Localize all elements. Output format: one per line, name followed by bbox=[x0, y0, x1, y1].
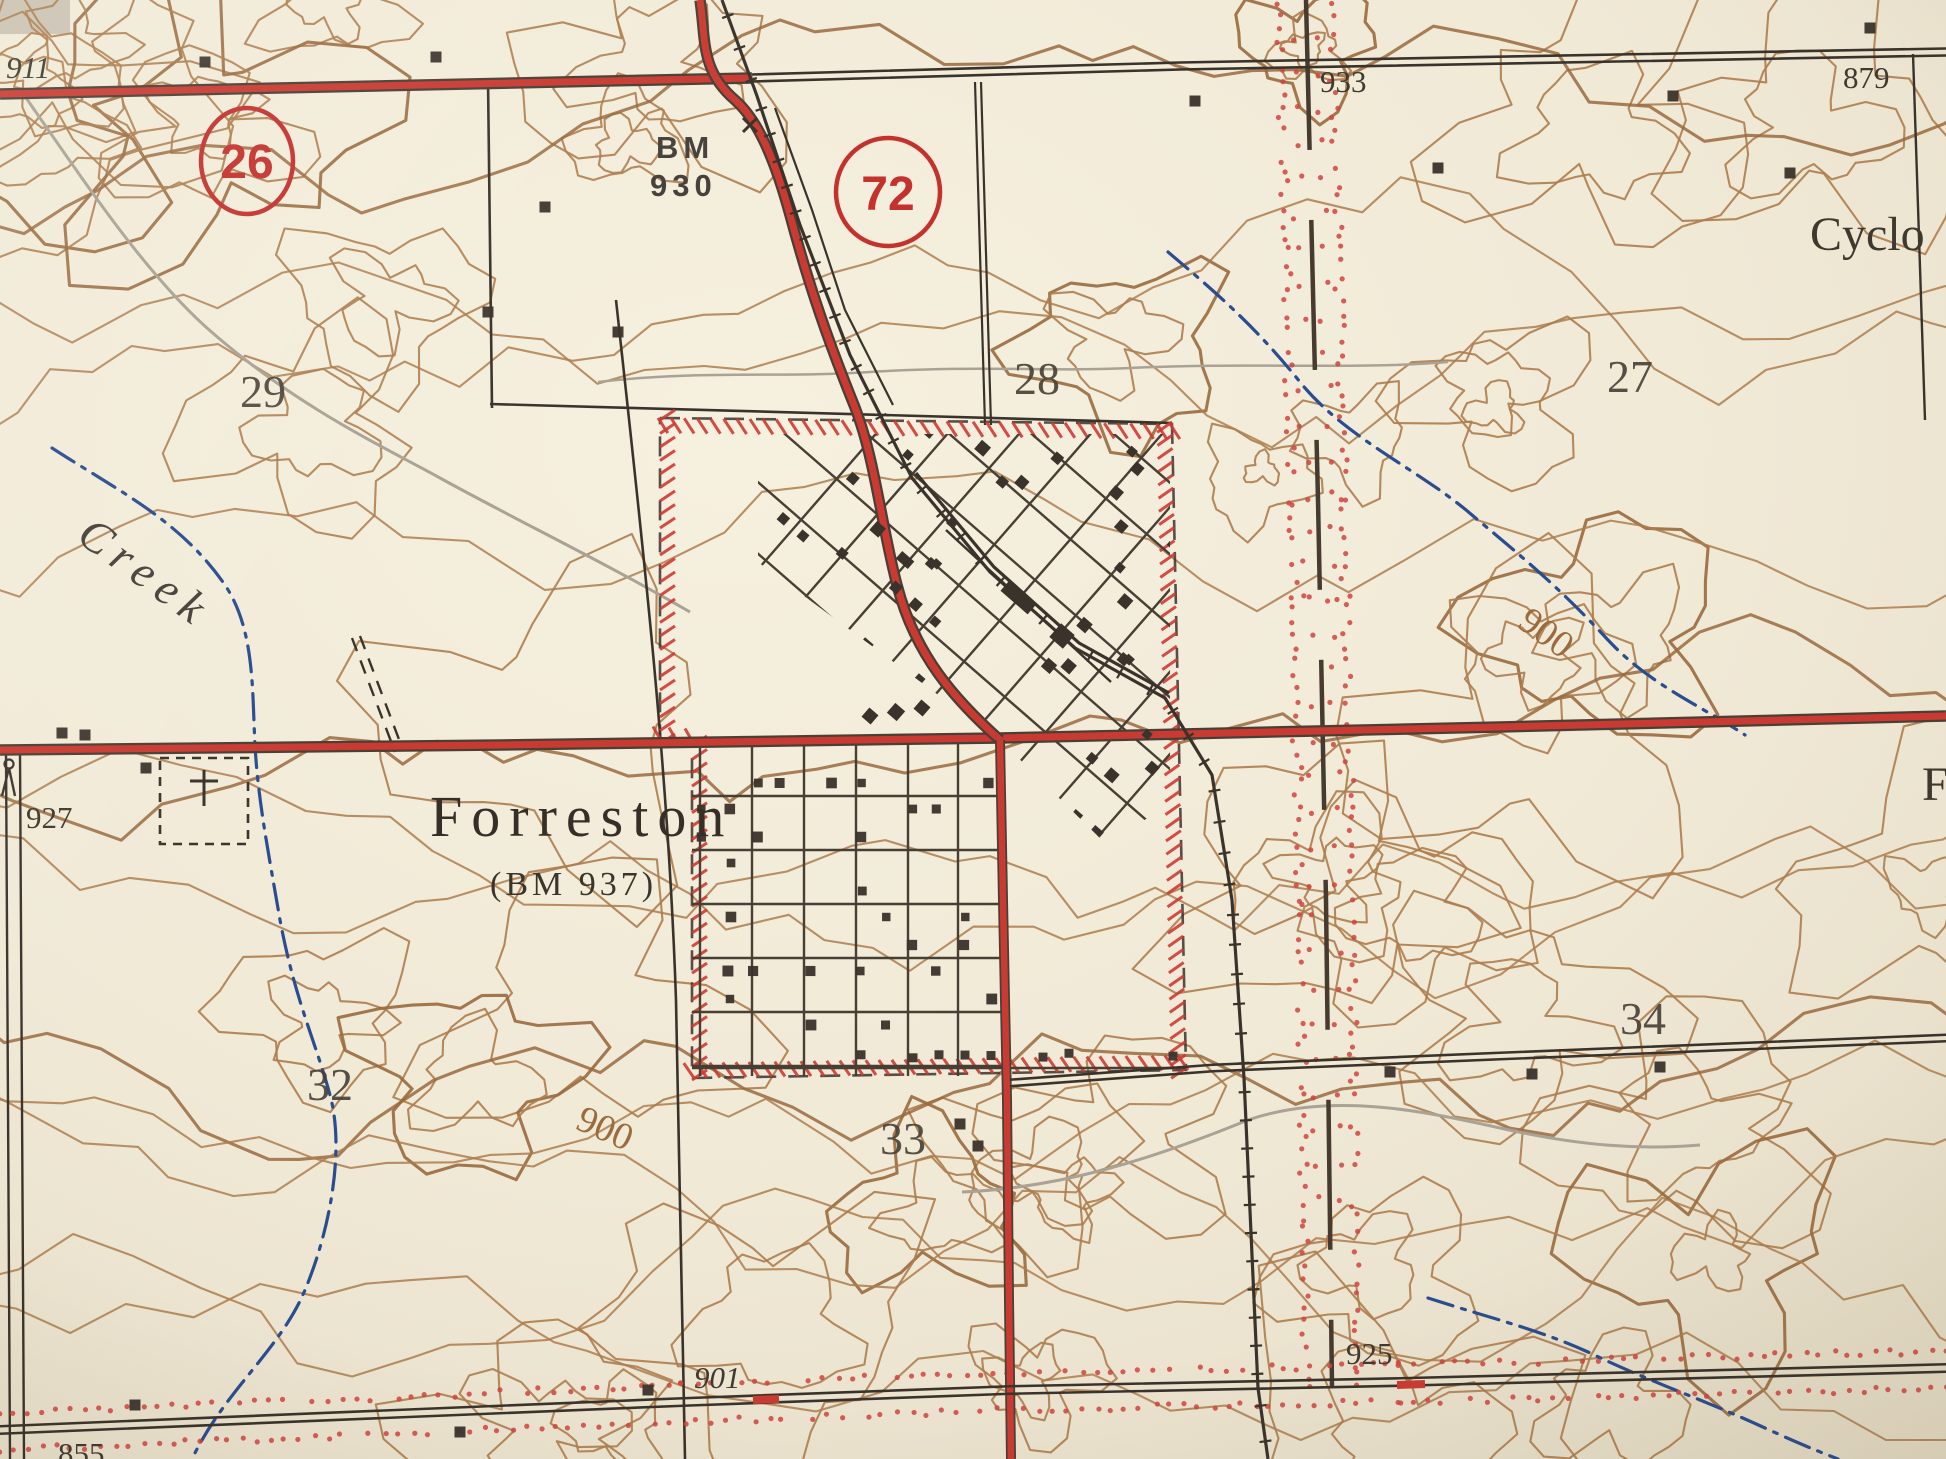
place-name-cyclone-partial: Cyclo bbox=[1810, 208, 1925, 261]
highway-shield-26-number: 26 bbox=[220, 136, 273, 189]
spot-elevation-911: 911 bbox=[6, 50, 50, 85]
spot-elevation-879: 879 bbox=[1843, 60, 1890, 95]
section-number-32: 32 bbox=[307, 1059, 353, 1110]
map-canvas[interactable]: 911 26 BM 930 72 933 879 Cyclo 29 28 27 … bbox=[0, 0, 1946, 1459]
section-number-34: 34 bbox=[1620, 993, 1666, 1044]
paper-background bbox=[0, 0, 1946, 1459]
spot-elevation-901: 901 bbox=[694, 1360, 741, 1395]
topo-map-photo: 911 26 BM 930 72 933 879 Cyclo 29 28 27 … bbox=[0, 0, 1946, 1459]
benchmark-930-line1: BM bbox=[656, 130, 714, 165]
section-number-33: 33 bbox=[880, 1113, 926, 1164]
benchmark-930-line2: 930 bbox=[650, 168, 717, 203]
highway-shield-72-number: 72 bbox=[861, 168, 914, 221]
section-number-27: 27 bbox=[1607, 351, 1653, 402]
spot-elevation-855: 855 bbox=[58, 1436, 105, 1459]
town-benchmark-937: (BM 937) bbox=[490, 866, 657, 903]
spot-elevation-933: 933 bbox=[1320, 64, 1367, 99]
section-number-29: 29 bbox=[240, 366, 286, 417]
spot-elevation-927: 927 bbox=[26, 800, 73, 835]
town-name-forreston: Forreston bbox=[430, 784, 733, 849]
section-number-28: 28 bbox=[1014, 353, 1060, 404]
spot-elevation-925: 925 bbox=[1346, 1336, 1393, 1371]
right-edge-letter: F bbox=[1922, 758, 1946, 811]
